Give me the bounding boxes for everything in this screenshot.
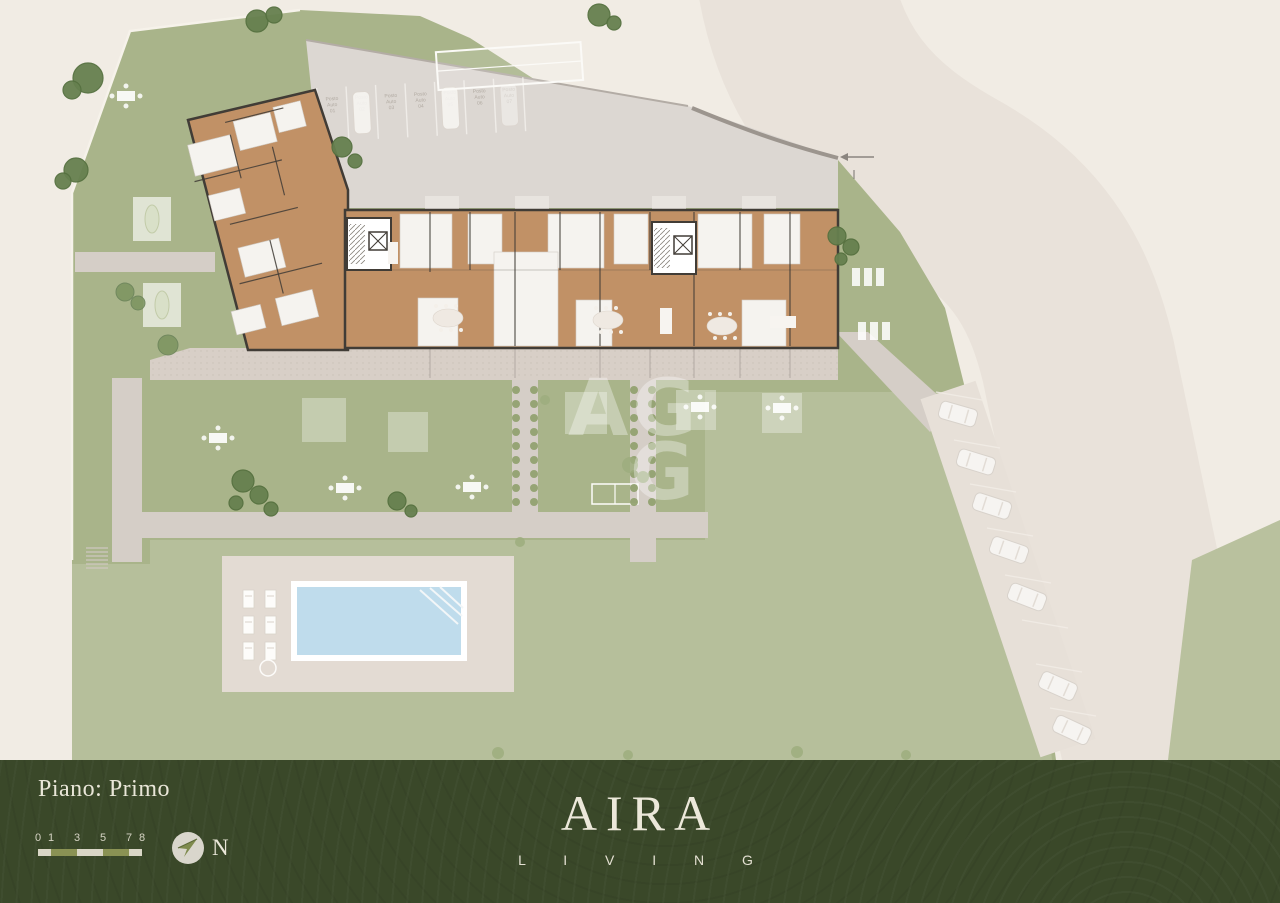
- bush: [901, 750, 911, 760]
- site-plan-sheet: PostoAuto01PostoAuto02PostoAuto03PostoAu…: [0, 0, 1280, 903]
- hedge-bush: [512, 456, 520, 464]
- apartment-room: [698, 214, 752, 268]
- tree: [332, 137, 352, 157]
- hedge-bush: [512, 386, 520, 394]
- garden-path: [75, 252, 215, 272]
- hedge-bush: [512, 428, 520, 436]
- hedge-bush: [630, 414, 638, 422]
- sun-lounger: [243, 642, 254, 660]
- hedge-bush: [648, 498, 656, 506]
- hedge-bush: [648, 386, 656, 394]
- site-plan-drawing: PostoAuto01PostoAuto02PostoAuto03PostoAu…: [0, 0, 1280, 760]
- bush: [623, 750, 633, 760]
- hedge-bush: [630, 442, 638, 450]
- hedge-bush: [648, 456, 656, 464]
- title-bar: Piano: Primo 013578 N AIRA L I V I N G: [0, 760, 1280, 903]
- tree: [229, 496, 243, 510]
- tree: [405, 505, 417, 517]
- hedge-bush: [530, 498, 538, 506]
- site-plan: PostoAuto01PostoAuto02PostoAuto03PostoAu…: [0, 0, 1280, 760]
- hedge-bush: [648, 414, 656, 422]
- hedge-bush: [512, 498, 520, 506]
- hedge-bush: [512, 470, 520, 478]
- lawn-pad: [388, 412, 428, 452]
- dining-table: [433, 309, 463, 327]
- hedge-bush: [512, 414, 520, 422]
- bush: [637, 471, 649, 483]
- hedge-bush: [512, 400, 520, 408]
- tree: [232, 470, 254, 492]
- hedge-bush: [530, 400, 538, 408]
- hedge-bush: [512, 484, 520, 492]
- tree: [843, 239, 859, 255]
- hedge-bush: [530, 386, 538, 394]
- hedge-bush: [530, 456, 538, 464]
- hedge-bush: [530, 484, 538, 492]
- hedge-bush: [648, 400, 656, 408]
- sun-lounger: [882, 322, 890, 340]
- stair-core: [652, 222, 696, 274]
- sun-lounger: [858, 322, 866, 340]
- dining-table: [707, 317, 737, 335]
- parked-car: [500, 84, 519, 127]
- hedge-bush: [630, 400, 638, 408]
- hedge-bush: [648, 470, 656, 478]
- tree: [131, 296, 145, 310]
- bush: [492, 747, 504, 759]
- tree: [266, 7, 282, 23]
- parked-car: [441, 87, 460, 130]
- hedge-bush: [530, 414, 538, 422]
- bush: [622, 457, 638, 473]
- tree: [63, 81, 81, 99]
- entrance-porch: [515, 196, 549, 210]
- apartment-room: [614, 214, 648, 264]
- tree: [250, 486, 268, 504]
- sun-lounger: [870, 322, 878, 340]
- garden-path: [112, 378, 142, 562]
- stair-core: [347, 218, 391, 270]
- garden-path: [140, 512, 708, 538]
- tree: [116, 283, 134, 301]
- brand-tagline: L I V I N G: [8, 852, 1280, 868]
- tree: [607, 16, 621, 30]
- hedge-bush: [630, 498, 638, 506]
- bush: [515, 537, 525, 547]
- sun-lounger: [876, 268, 884, 286]
- hedge-bush: [530, 428, 538, 436]
- sun-lounger: [243, 616, 254, 634]
- tree: [55, 173, 71, 189]
- hedge-bush: [512, 442, 520, 450]
- pool: [297, 587, 461, 655]
- sofa: [388, 242, 398, 264]
- tree: [828, 227, 846, 245]
- hedge-bush: [530, 442, 538, 450]
- bush: [791, 746, 803, 758]
- hedge-bush: [648, 428, 656, 436]
- brand-name: AIRA: [0, 784, 1280, 842]
- hedge-bush: [630, 386, 638, 394]
- hedge-bush: [630, 484, 638, 492]
- apartment-room: [764, 214, 800, 264]
- parked-car: [352, 91, 371, 134]
- apartment-room: [494, 252, 558, 346]
- tree: [835, 253, 847, 265]
- tree: [264, 502, 278, 516]
- apartment-room: [400, 214, 452, 268]
- sun-lounger: [265, 616, 276, 634]
- tree: [388, 492, 406, 510]
- tree: [158, 335, 178, 355]
- sun-lounger: [243, 590, 254, 608]
- lawn-pad: [565, 392, 607, 434]
- dining-table: [593, 311, 623, 329]
- hedge-bush: [648, 442, 656, 450]
- lawn-pad: [302, 398, 346, 442]
- sun-lounger: [864, 268, 872, 286]
- entrance-porch: [652, 196, 686, 210]
- hedge-bush: [630, 428, 638, 436]
- tree: [348, 154, 362, 168]
- sun-lounger: [265, 642, 276, 660]
- garden-path: [630, 512, 656, 562]
- entrance-porch: [425, 196, 459, 210]
- hedge-bush: [530, 470, 538, 478]
- brand-logo: AIRA L I V I N G: [0, 784, 1280, 868]
- entrance-porch: [742, 196, 776, 210]
- sofa: [660, 308, 672, 334]
- sun-lounger: [852, 268, 860, 286]
- bush: [540, 395, 550, 405]
- hedge-bush: [648, 484, 656, 492]
- sun-lounger: [265, 590, 276, 608]
- sofa: [770, 316, 796, 328]
- tree: [246, 10, 268, 32]
